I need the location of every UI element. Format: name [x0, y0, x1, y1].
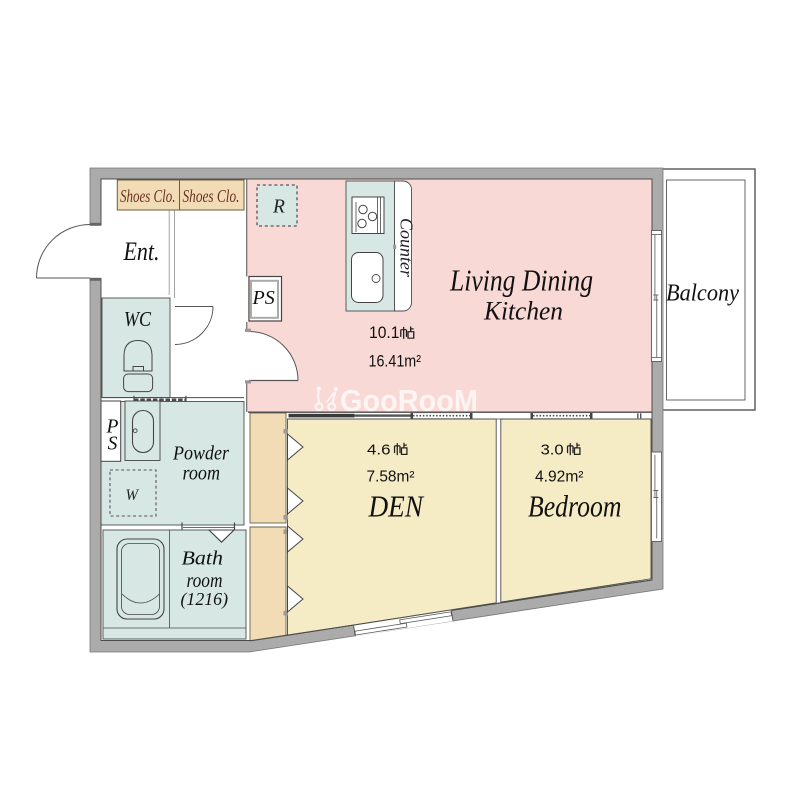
- svg-text:16.41m²: 16.41m²: [369, 352, 422, 370]
- svg-text:WC: WC: [124, 307, 152, 331]
- svg-text:Shoes Clo.: Shoes Clo.: [120, 186, 176, 206]
- svg-text:Bedroom: Bedroom: [528, 489, 622, 524]
- svg-text:3.0: 3.0: [541, 441, 564, 458]
- svg-text:room: room: [183, 464, 221, 485]
- svg-text:Kitchen: Kitchen: [483, 295, 563, 325]
- svg-text:4.6: 4.6: [367, 441, 391, 458]
- svg-text:Ent.: Ent.: [123, 237, 160, 266]
- svg-text:Balcony: Balcony: [666, 280, 739, 307]
- svg-text:Living Dining: Living Dining: [449, 264, 593, 298]
- svg-text:Shoes Clo.: Shoes Clo.: [183, 186, 240, 206]
- svg-text:(1216): (1216): [181, 589, 229, 609]
- svg-text:S: S: [108, 433, 118, 454]
- svg-text:R: R: [272, 197, 285, 218]
- svg-text:DEN: DEN: [368, 489, 425, 524]
- svg-text:10.1: 10.1: [369, 324, 400, 342]
- svg-text:Counter: Counter: [397, 218, 417, 278]
- svg-text:Powder: Powder: [172, 443, 229, 464]
- svg-text:W: W: [126, 487, 140, 504]
- svg-text:GooRooM: GooRooM: [340, 384, 478, 418]
- svg-text:Bath: Bath: [182, 548, 224, 570]
- svg-text:7.58m²: 7.58m²: [367, 469, 415, 486]
- svg-text:PS: PS: [252, 287, 275, 309]
- svg-text:4.92m²: 4.92m²: [535, 469, 584, 486]
